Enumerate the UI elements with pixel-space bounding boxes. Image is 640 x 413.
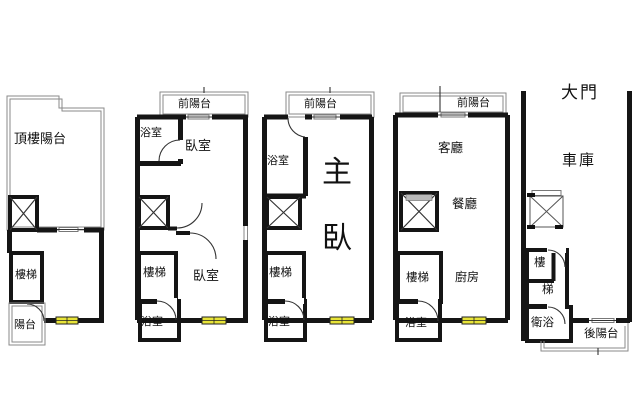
elevator-jamb xyxy=(555,225,563,229)
elevator-sill xyxy=(406,195,432,201)
label-bathroom: 浴室 xyxy=(405,317,427,329)
door-arc xyxy=(288,118,305,137)
wall xyxy=(44,230,102,321)
label-stairs-lower: 梯 xyxy=(542,283,554,296)
elevator-sill xyxy=(532,191,561,196)
elevator-x-icon xyxy=(530,196,563,227)
label-garage: 車庫 xyxy=(562,152,596,169)
elevator-jamb xyxy=(527,225,535,229)
label-balcony: 陽台 xyxy=(14,319,36,331)
floorplan-living xyxy=(395,86,508,340)
label-stairs-upper: 樓 xyxy=(534,256,546,269)
door-arc xyxy=(159,140,180,161)
floorplan-bedroom-b xyxy=(264,87,374,340)
label-front-balcony: 前陽台 xyxy=(457,97,490,109)
side-window xyxy=(244,226,248,240)
label-bathroom: 浴室 xyxy=(140,127,162,139)
elevator-x-icon xyxy=(10,197,37,230)
elevator-x-icon xyxy=(139,197,168,228)
label-main-door: 大門 xyxy=(561,84,599,103)
label-rear-balcony: 後陽台 xyxy=(584,327,619,340)
label-bathroom: 衛浴 xyxy=(531,316,554,329)
roof-terrace-outline-inner xyxy=(10,99,101,227)
elevator-x-icon xyxy=(267,197,300,228)
floorplan-bedroom-a xyxy=(137,87,248,340)
label-bathroom: 浴室 xyxy=(141,316,163,328)
label-kitchen: 廚房 xyxy=(455,271,479,284)
label-front-balcony: 前陽台 xyxy=(178,98,211,110)
floorplan-canvas: 頂樓陽台 樓梯 陽台 前陽台 浴室 臥室 樓梯 臥室 浴室 前陽台 浴室 主臥 … xyxy=(0,0,640,413)
label-stairs: 樓梯 xyxy=(143,266,166,279)
label-bedroom: 臥室 xyxy=(185,140,211,154)
label-stairs: 樓梯 xyxy=(269,266,292,279)
stairs-room xyxy=(527,250,567,306)
door-arc xyxy=(190,233,216,259)
label-dining-room: 餐廳 xyxy=(452,197,477,211)
label-front-balcony: 前陽台 xyxy=(304,98,337,110)
floorplan-drawing xyxy=(0,0,640,413)
label-roof-terrace: 頂樓陽台 xyxy=(14,133,66,147)
label-living-room: 客廳 xyxy=(438,141,463,155)
label-bedroom: 臥室 xyxy=(193,270,219,284)
label-stairs: 樓梯 xyxy=(406,271,429,284)
elevator-jamb xyxy=(527,193,535,197)
roof-terrace-outline xyxy=(7,96,104,230)
label-bathroom: 浴室 xyxy=(268,316,290,328)
door-arc xyxy=(177,203,202,228)
label-master-bedroom: 主臥 xyxy=(321,140,353,272)
label-bathroom: 浴室 xyxy=(267,155,289,167)
label-stairs: 樓梯 xyxy=(15,269,37,281)
